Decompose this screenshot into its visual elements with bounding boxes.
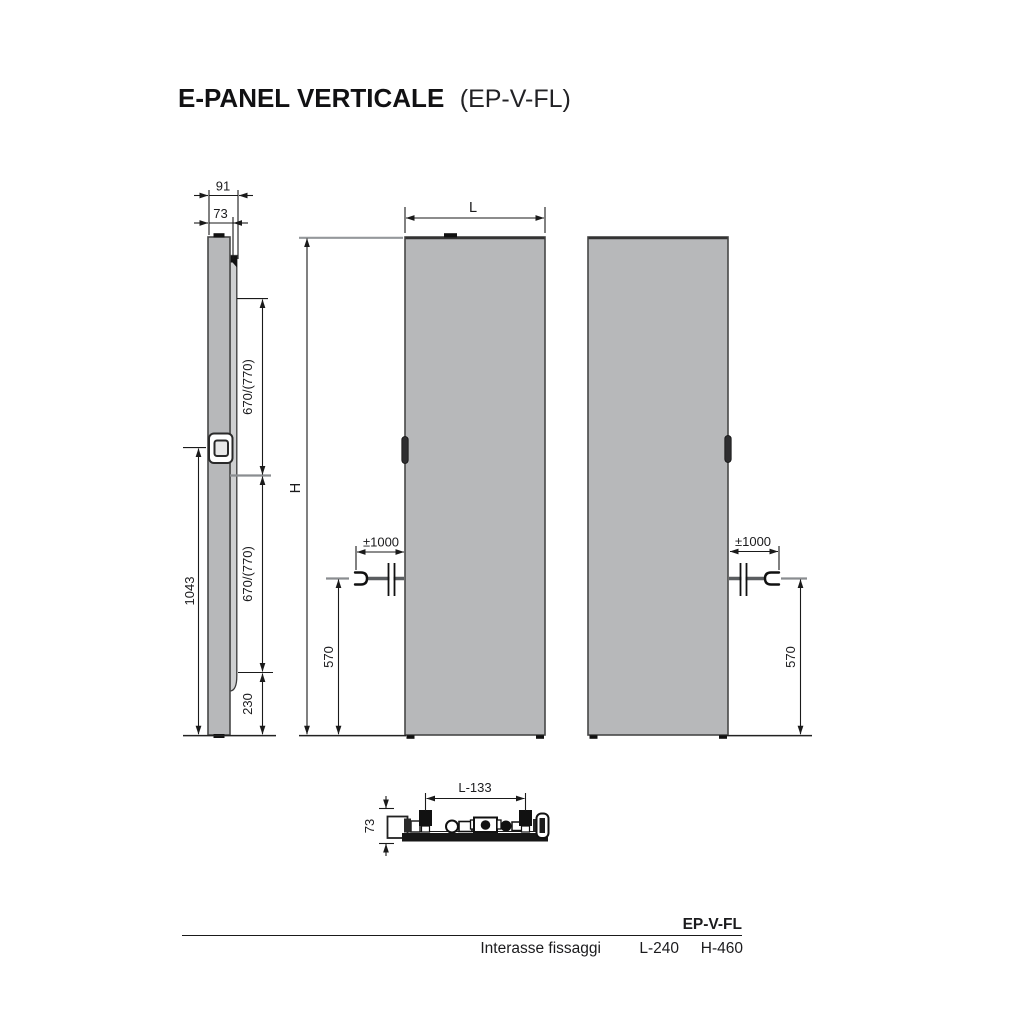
side-view — [208, 233, 237, 738]
side-panel-body — [208, 237, 230, 735]
dim-cable-allowance-left-label: ±1000 — [363, 535, 399, 550]
section-end-cap-inner — [540, 818, 546, 833]
section-left-detail — [404, 819, 411, 833]
cable-plug-icon — [765, 573, 779, 585]
cable-plug-icon — [355, 573, 367, 585]
front-foot-left — [407, 735, 415, 739]
section-bracket-left — [419, 810, 432, 826]
dim-cable-height-right: 570 — [781, 579, 807, 735]
bottom-section-view — [388, 810, 549, 842]
dim-height-H-label: H — [288, 483, 304, 493]
section-small-box — [411, 821, 420, 832]
dim-span-upper-label: 670/(770) — [240, 359, 255, 415]
dim-width-L: L — [405, 200, 545, 233]
dim-span-lower: 670/(770) — [238, 477, 273, 673]
dim-width-L-label: L — [469, 200, 477, 216]
front-panel-body — [405, 237, 545, 735]
section-bracket-right-slot — [522, 826, 530, 832]
section-tab-2 — [497, 820, 501, 829]
dim-cable-height-left: 570 — [321, 579, 349, 735]
dim-depth-panel-label: 73 — [213, 206, 227, 221]
section-bracket-left-slot — [422, 826, 430, 832]
right-view-dimensions: ±1000 570 — [727, 534, 812, 736]
page-title-main: E-PANEL VERTICALE — [178, 83, 444, 113]
dim-fixing-span-label: L-133 — [458, 780, 491, 795]
dim-cable-height-right-label: 570 — [783, 646, 798, 668]
right-side-tab — [725, 436, 731, 463]
dim-cable-height-left-label: 570 — [321, 646, 336, 668]
drawing-page: E-PANEL VERTICALE (EP-V-FL) 91 73 — [0, 0, 1024, 1024]
front-top-vent — [444, 233, 457, 237]
spec-l-spacing: L-240 — [639, 940, 679, 957]
dim-cable-allowance-right: ±1000 — [730, 534, 779, 570]
spec-h-spacing: H-460 — [701, 940, 744, 957]
dim-depth-total-label: 91 — [216, 179, 230, 194]
front-view — [402, 233, 545, 739]
section-pipe — [446, 821, 458, 833]
technical-drawing: E-PANEL VERTICALE (EP-V-FL) 91 73 — [0, 0, 1024, 1024]
dim-depth-panel: 73 — [194, 206, 248, 223]
mounting-clip-inner — [215, 441, 229, 457]
dim-cable-allowance-left: ±1000 — [356, 535, 404, 571]
spec-model: EP-V-FL — [683, 916, 742, 933]
dim-fixing-span: L-133 — [426, 780, 526, 811]
front-side-tab — [402, 437, 408, 464]
power-cable-right — [729, 563, 779, 596]
section-bracket-right — [519, 810, 532, 826]
side-top-vent — [214, 233, 225, 237]
right-panel-body — [588, 237, 728, 735]
section-base-bar — [402, 833, 548, 842]
wall-rail — [230, 256, 237, 692]
dim-height-H: H — [288, 238, 403, 735]
dim-bottom-offset: 230 — [240, 674, 263, 735]
page-title: E-PANEL VERTICALE (EP-V-FL) — [178, 83, 571, 113]
bottom-section-dimensions: L-133 73 — [362, 780, 526, 856]
dim-height-to-bracket: 1043 — [182, 448, 206, 735]
right-view — [588, 237, 731, 739]
page-title-code: (EP-V-FL) — [460, 85, 571, 113]
power-cable-left — [355, 563, 404, 596]
right-foot-left — [590, 735, 598, 739]
spec-row-label: Interasse fissaggi — [480, 940, 601, 957]
right-foot-right — [719, 735, 727, 739]
dim-bottom-offset-label: 230 — [240, 693, 255, 715]
dim-height-to-bracket-label: 1043 — [182, 577, 197, 606]
front-foot-right — [536, 735, 544, 739]
section-nut — [501, 821, 512, 832]
dim-span-lower-label: 670/(770) — [240, 546, 255, 602]
dim-section-depth-label: 73 — [362, 819, 377, 833]
dim-cable-allowance-right-label: ±1000 — [735, 534, 771, 549]
spec-table: EP-V-FL Interasse fissaggi L-240 H-460 — [182, 916, 743, 957]
section-valve-dot — [481, 820, 491, 830]
